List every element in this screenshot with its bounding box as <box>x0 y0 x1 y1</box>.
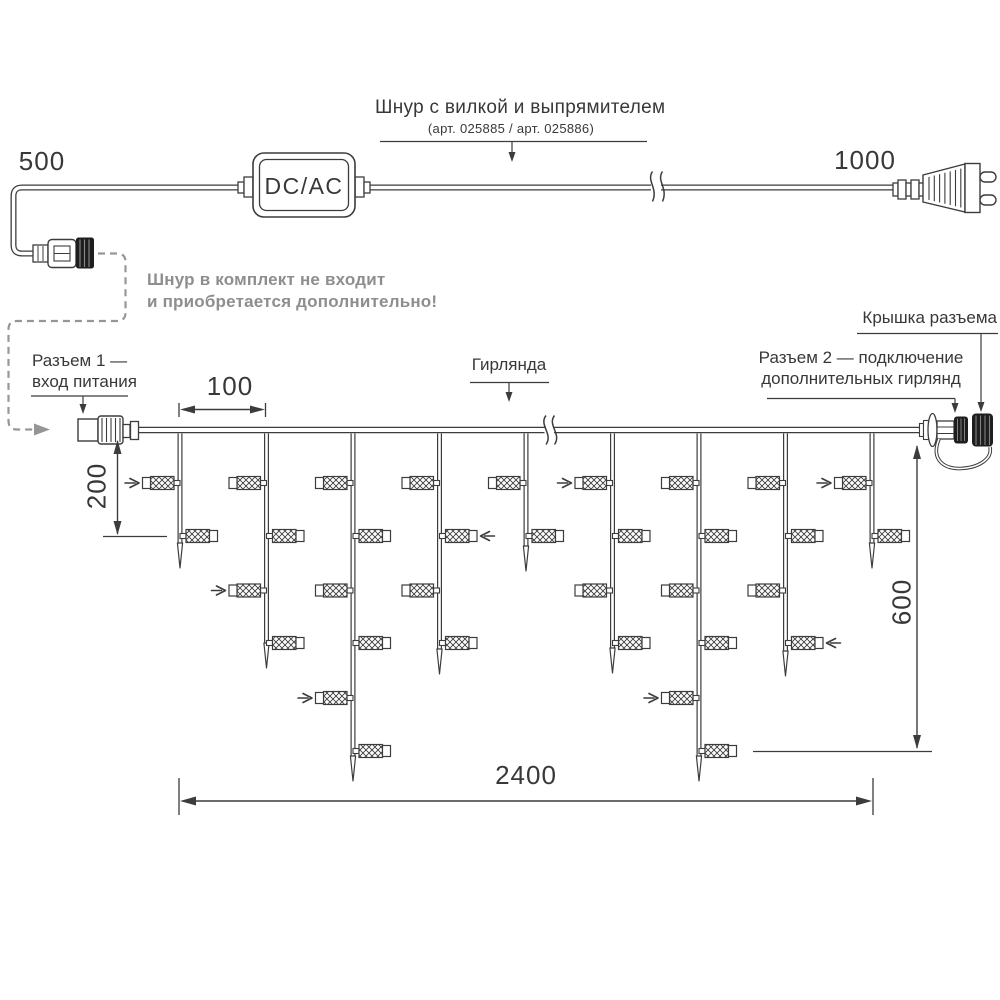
garland-connector1-neck <box>123 425 130 438</box>
lamp-stub <box>347 481 353 486</box>
lamp-cap <box>383 638 391 649</box>
lamp-body <box>359 530 383 543</box>
drop-8-needle-tip <box>783 651 788 676</box>
lamp-body <box>273 530 297 543</box>
plug-prong <box>980 172 996 182</box>
lamp-stub <box>347 588 353 593</box>
cord-connector-ribs <box>33 245 48 262</box>
dashed-route-arrowhead <box>34 424 50 436</box>
lamp-cap <box>662 693 670 704</box>
lamp-cap <box>316 478 324 489</box>
lamp-body <box>583 477 607 490</box>
lamp-stub <box>526 534 532 539</box>
lamp-body <box>619 530 643 543</box>
lamp-stub <box>780 481 786 486</box>
cord-callout-arrow <box>509 152 516 162</box>
lamp-stub <box>866 481 872 486</box>
lamp-cap <box>575 478 583 489</box>
lamp-body <box>705 637 729 650</box>
lamp-cap <box>902 531 910 542</box>
note-line1: Шнур в комплект не входит <box>147 270 385 290</box>
lamp-cap <box>662 585 670 596</box>
lamp-stub <box>267 534 273 539</box>
dim-2400-label: 2400 <box>486 760 566 791</box>
lamp-body <box>532 530 556 543</box>
lamp-body <box>705 530 729 543</box>
lamp-stub <box>780 588 786 593</box>
lamp-body <box>792 637 816 650</box>
connector2-rib <box>920 424 924 437</box>
drop-3-needle-tip <box>350 756 355 781</box>
lamp-body <box>756 477 780 490</box>
lamp-body <box>670 477 694 490</box>
lamp-body <box>410 477 434 490</box>
drop-9-needle-tip <box>869 543 874 568</box>
connector1-label-line2: вход питания <box>32 371 137 392</box>
lamp-cap <box>729 638 737 649</box>
lamp-stub <box>613 641 619 646</box>
flash-lamp-arrow <box>298 694 312 703</box>
lamp-body <box>446 637 470 650</box>
lamp-cap <box>748 585 756 596</box>
lamp-body <box>497 477 521 490</box>
lamp-cap <box>489 478 497 489</box>
lamp-body <box>670 692 694 705</box>
lamp-stub <box>267 641 273 646</box>
cord-callout-subtitle: (арт. 025885 / арт. 025886) <box>375 121 647 136</box>
dim-500-label: 500 <box>16 146 68 177</box>
dim-1000-label: 1000 <box>834 145 896 176</box>
garland-dimension-diagram: Шнур с вилкой и выпрямителем (арт. 02588… <box>0 0 1000 1000</box>
plug-boot <box>911 180 919 199</box>
lamp-stub <box>693 481 699 486</box>
note-line2: и приобретается дополнительно! <box>147 292 437 312</box>
plug-boot <box>893 183 898 196</box>
cap-label: Крышка разъема <box>857 307 997 328</box>
lamp-stub <box>261 481 267 486</box>
lamp-cap <box>296 638 304 649</box>
lamp-cap <box>383 531 391 542</box>
flash-lamp-arrow <box>827 639 841 648</box>
garland-callout-arrow <box>506 392 513 402</box>
dim-2400-arrow <box>856 797 872 806</box>
garland-connector1-neck <box>131 422 139 440</box>
lamp-body <box>237 477 261 490</box>
lamp-stub <box>440 641 446 646</box>
lamp-cap <box>383 746 391 757</box>
converter-label: DC/AC <box>259 173 349 200</box>
lamp-cap <box>642 638 650 649</box>
lamp-cap <box>316 585 324 596</box>
dim-200-label: 200 <box>82 463 113 509</box>
lamp-stub <box>699 749 705 754</box>
drop-5-needle-tip <box>523 546 528 571</box>
converter-rib <box>364 182 370 193</box>
garland-connector1-plug <box>78 419 98 441</box>
flash-lamp-arrow <box>212 586 226 595</box>
lamp-stub <box>693 588 699 593</box>
lamp-body <box>237 584 261 597</box>
lamp-stub <box>261 588 267 593</box>
lamp-stub <box>353 749 359 754</box>
flash-lamp-arrow <box>644 694 658 703</box>
drop-4-needle-tip <box>437 649 442 674</box>
drop-7-needle-tip <box>696 756 701 781</box>
lamp-body <box>410 584 434 597</box>
flash-lamp-arrow <box>558 479 572 488</box>
lamp-body <box>186 530 210 543</box>
lamp-body <box>705 745 729 758</box>
drop-6-needle-tip <box>610 648 615 673</box>
connector2-body <box>937 421 954 439</box>
lamp-cap <box>469 638 477 649</box>
lamp-body <box>324 692 348 705</box>
lamp-cap <box>729 531 737 542</box>
lamp-stub <box>786 534 792 539</box>
lamp-cap <box>143 478 151 489</box>
lamp-stub <box>434 481 440 486</box>
lamp-cap <box>556 531 564 542</box>
lamp-body <box>359 637 383 650</box>
lamp-cap <box>642 531 650 542</box>
dim-100-label: 100 <box>204 371 256 402</box>
lamp-stub <box>174 481 180 486</box>
lamp-cap <box>210 531 218 542</box>
lamp-cap <box>402 478 410 489</box>
converter-rib <box>244 177 253 197</box>
dim-600-arrow <box>913 735 921 749</box>
lamp-cap <box>316 693 324 704</box>
not-included-dashed-route <box>9 254 126 430</box>
lamp-stub <box>434 588 440 593</box>
connector2-callout-arrow <box>952 403 959 413</box>
dim-200-arrow <box>114 521 122 535</box>
lamp-cap <box>296 531 304 542</box>
connector2-label-line1: Разъем 2 — подключение <box>741 347 981 368</box>
flash-lamp-arrow <box>817 479 831 488</box>
plug-prong <box>980 195 996 205</box>
lamp-cap <box>835 478 843 489</box>
dim-2400-arrow <box>180 797 196 806</box>
lamp-stub <box>613 534 619 539</box>
lamp-body <box>792 530 816 543</box>
plug-boot <box>906 183 911 196</box>
converter-rib <box>355 177 364 197</box>
dim-100-arrow <box>180 406 195 414</box>
cord-callout-title: Шнур с вилкой и выпрямителем <box>375 97 647 119</box>
dim-600-arrow <box>913 445 921 459</box>
lamp-cap <box>748 478 756 489</box>
connector1-label-line1: Разъем 1 — <box>32 350 127 371</box>
drop-2-needle-tip <box>264 643 269 668</box>
lamp-body <box>756 584 780 597</box>
flash-lamp-arrow <box>481 532 495 541</box>
garland-label: Гирлянда <box>459 354 559 375</box>
lamp-cap <box>575 585 583 596</box>
flash-lamp-arrow <box>125 479 139 488</box>
converter-rib <box>238 182 244 193</box>
connector2-flange <box>928 414 937 447</box>
lamp-stub <box>786 641 792 646</box>
dim-600-label: 600 <box>887 579 918 625</box>
lamp-cap <box>229 478 237 489</box>
lamp-cap <box>469 531 477 542</box>
lamp-stub <box>180 534 186 539</box>
lamp-stub <box>607 481 613 486</box>
lamp-body <box>359 745 383 758</box>
lamp-stub <box>699 641 705 646</box>
lamp-body <box>151 477 175 490</box>
connector1-callout-arrow <box>80 404 87 414</box>
lamp-body <box>446 530 470 543</box>
lamp-stub <box>353 534 359 539</box>
lamp-cap <box>229 585 237 596</box>
lamp-cap <box>729 746 737 757</box>
dim-100-arrow <box>250 406 265 414</box>
lamp-body <box>324 584 348 597</box>
lamp-body <box>583 584 607 597</box>
plug-boot <box>898 180 906 199</box>
lamp-cap <box>662 478 670 489</box>
lamp-stub <box>699 534 705 539</box>
lamp-body <box>273 637 297 650</box>
lamp-stub <box>347 696 353 701</box>
lamp-body <box>878 530 902 543</box>
drop-1-needle-tip <box>177 543 182 568</box>
lamp-stub <box>353 641 359 646</box>
lamp-stub <box>520 481 526 486</box>
lamp-body <box>619 637 643 650</box>
connector2-label-line2: дополнительных гирлянд <box>741 368 981 389</box>
lamp-body <box>670 584 694 597</box>
lamp-stub <box>440 534 446 539</box>
lamp-stub <box>693 696 699 701</box>
lamp-body <box>843 477 867 490</box>
lamp-cap <box>815 638 823 649</box>
lamp-cap <box>815 531 823 542</box>
cap-callout-arrow <box>978 402 985 412</box>
lamp-cap <box>402 585 410 596</box>
lamp-body <box>324 477 348 490</box>
lamp-stub <box>607 588 613 593</box>
lamp-stub <box>872 534 878 539</box>
plug-face <box>965 164 980 213</box>
